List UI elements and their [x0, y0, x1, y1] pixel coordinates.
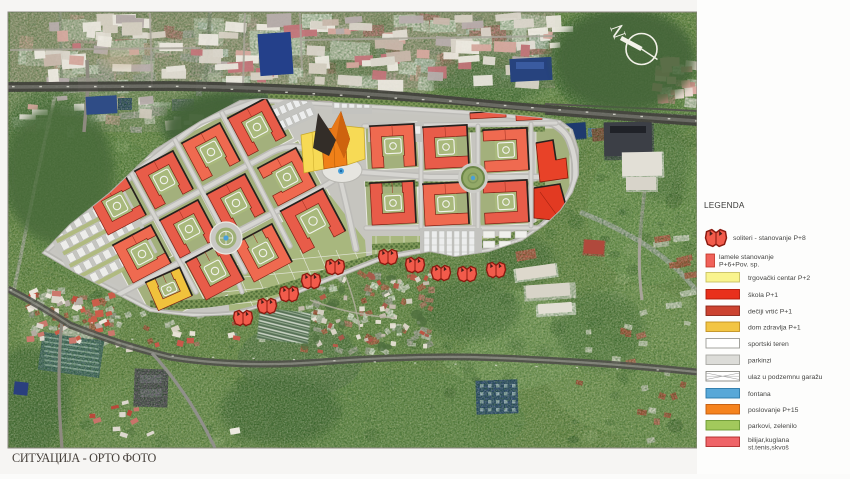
svg-text:СИТУАЦИЈА - ОРТО ФОТО: СИТУАЦИЈА - ОРТО ФОТО: [12, 451, 156, 465]
svg-text:trgovački centar P+2: trgovački centar P+2: [748, 275, 810, 282]
svg-text:parkovi, zelenilo: parkovi, zelenilo: [748, 423, 797, 430]
svg-text:škola P+1: škola P+1: [748, 292, 778, 299]
svg-text:dom zdravlja P+1: dom zdravlja P+1: [748, 325, 801, 332]
svg-text:poslovanje P+15: poslovanje P+15: [748, 407, 799, 414]
svg-text:bilijar,kuglana: bilijar,kuglana: [748, 437, 789, 444]
svg-text:P+6+Pov. sp.: P+6+Pov. sp.: [719, 262, 759, 269]
svg-text:LEGENDA: LEGENDA: [704, 201, 745, 210]
svg-text:dečiji vrtić P+1: dečiji vrtić P+1: [748, 309, 792, 316]
svg-text:fontana: fontana: [748, 391, 771, 398]
svg-text:sportski teren: sportski teren: [748, 341, 789, 348]
svg-text:ulaz u podzemnu garažu: ulaz u podzemnu garažu: [748, 374, 823, 381]
svg-text:lamele stanovanje: lamele stanovanje: [719, 254, 774, 261]
svg-text:st.tenis,skvoš: st.tenis,skvoš: [748, 445, 789, 452]
svg-text:parkinzi: parkinzi: [748, 358, 772, 365]
svg-text:soliteri - stanovanje P+8: soliteri - stanovanje P+8: [733, 235, 806, 242]
